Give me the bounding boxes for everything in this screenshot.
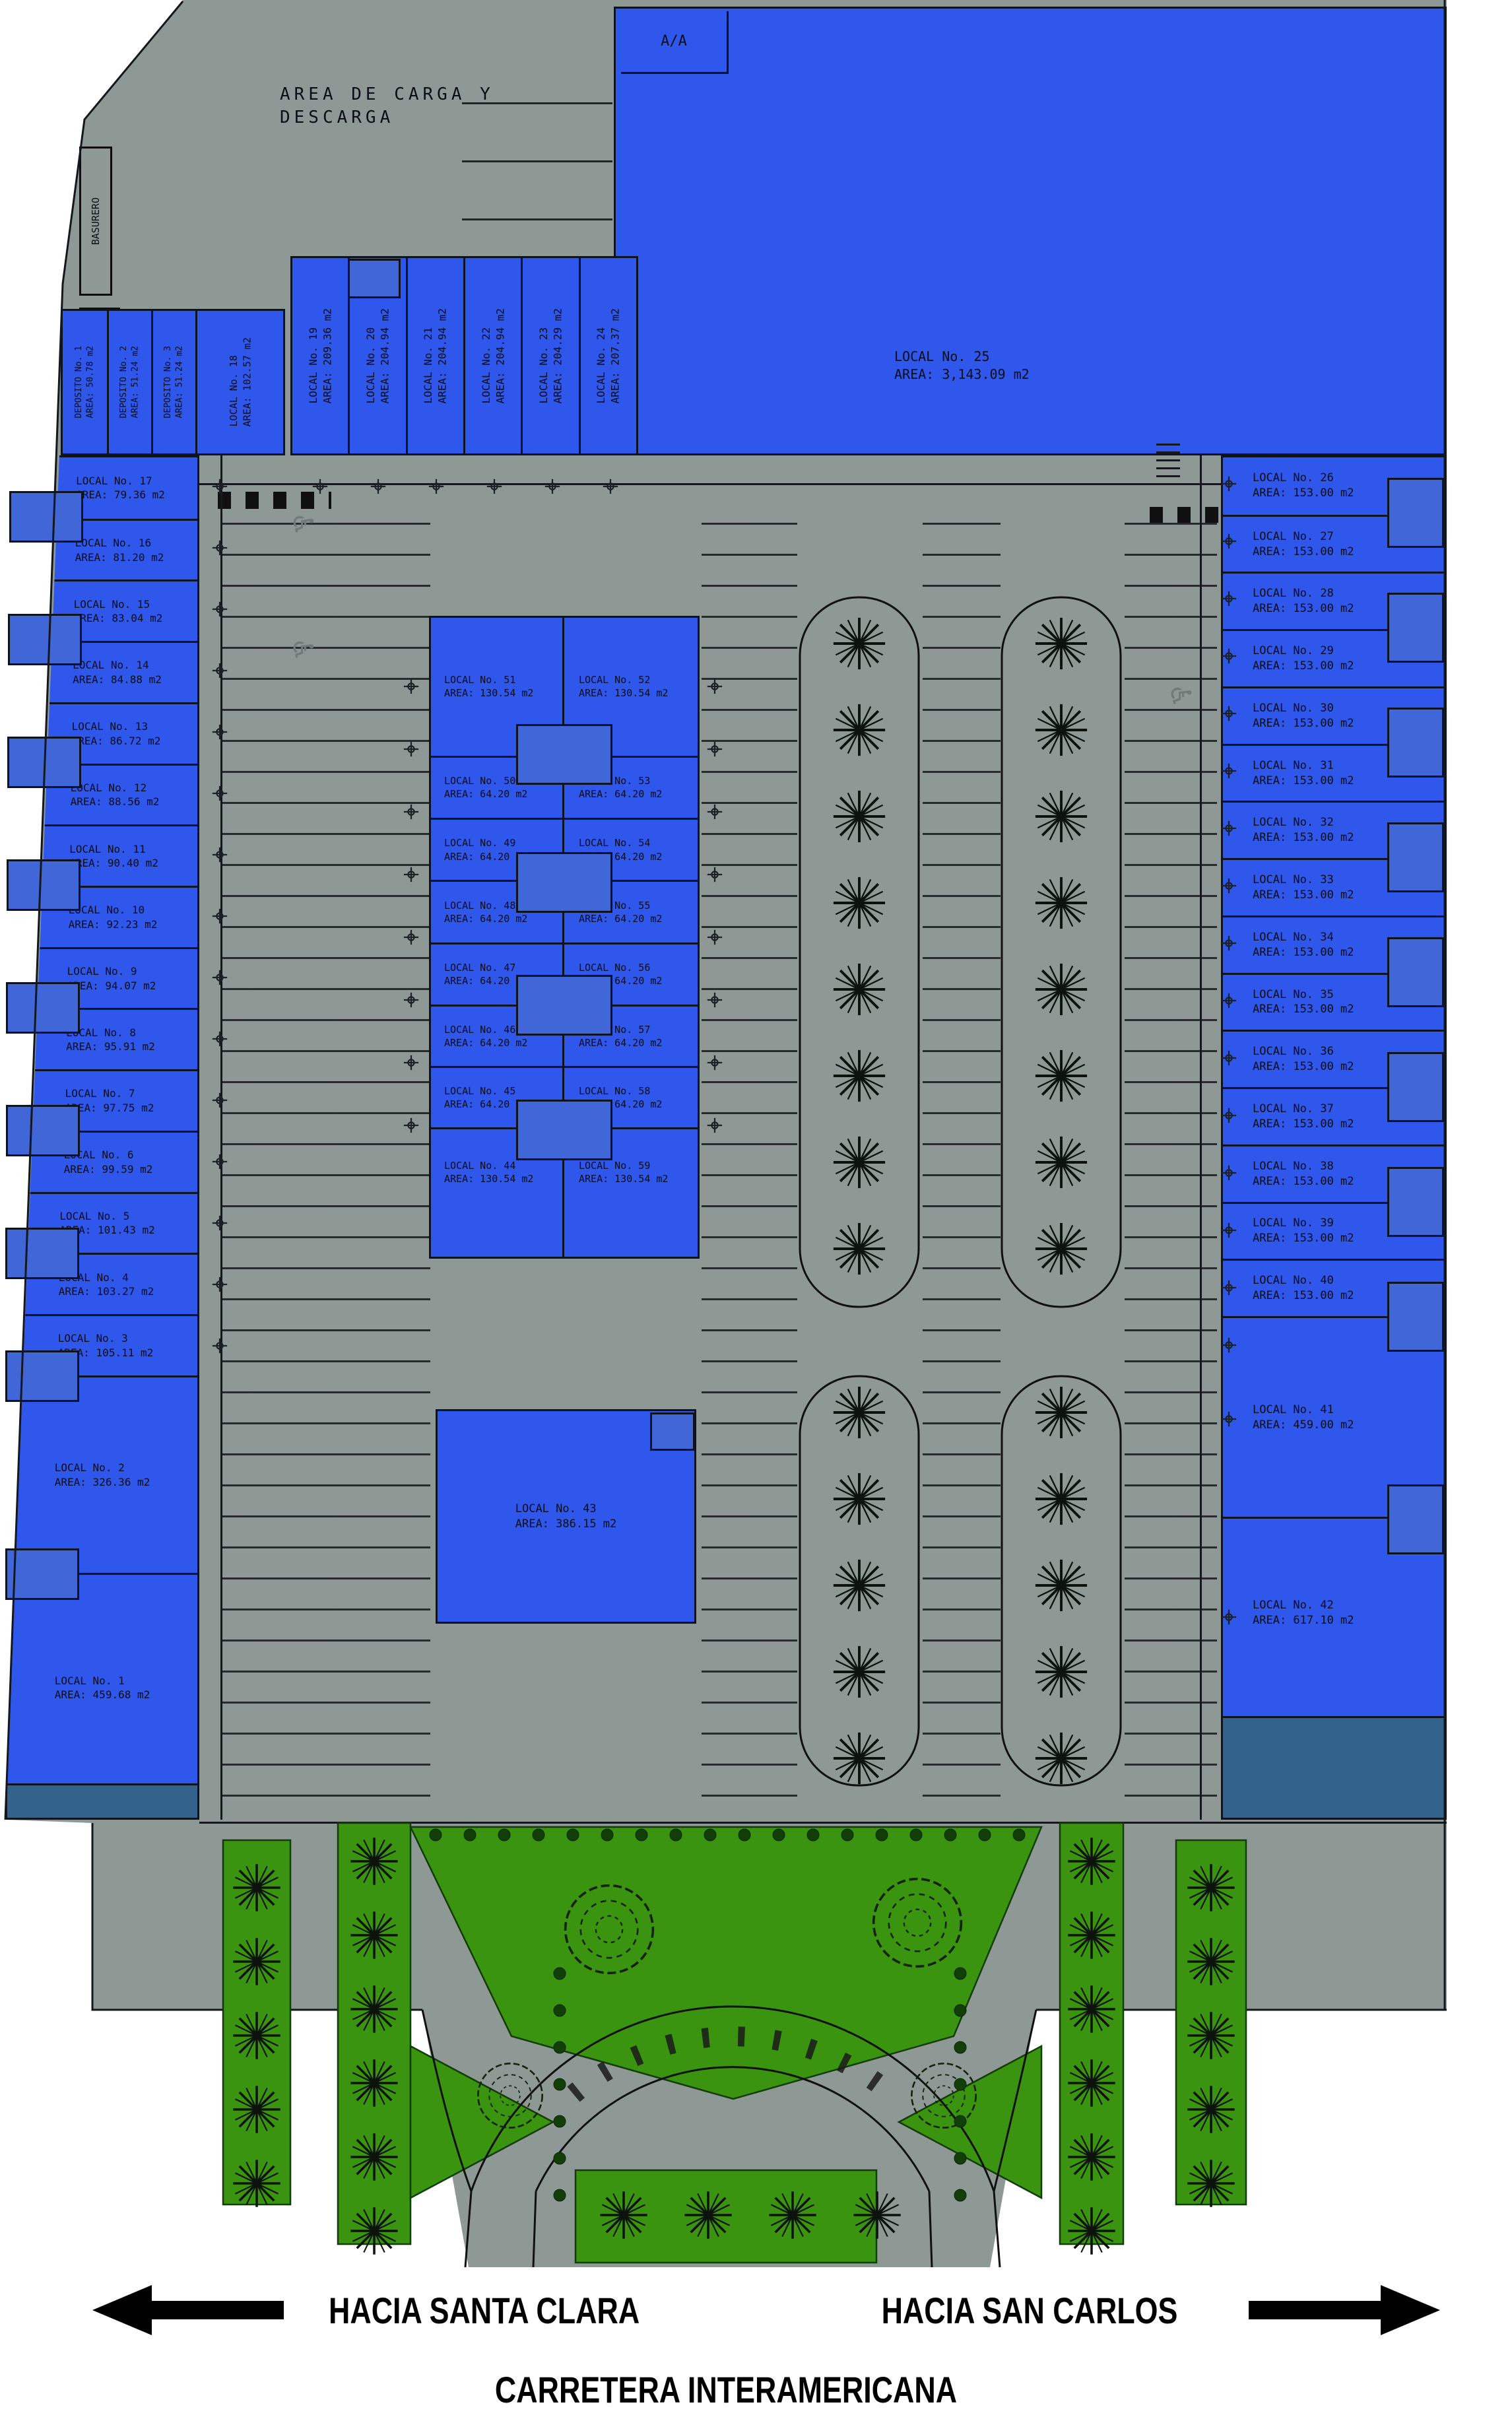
destination-right: HACIA SAN CARLOS bbox=[876, 2289, 1183, 2332]
road-name: CARRETERA INTERAMERICANA bbox=[462, 2368, 990, 2411]
palm-tree-icon bbox=[350, 2059, 397, 2106]
bathroom-pod bbox=[1387, 1052, 1444, 1122]
deposito-1: DEPOSITO No. 1AREA: 50.78 m2 bbox=[63, 311, 107, 453]
bathroom-pod bbox=[1387, 478, 1444, 548]
local-25: A/A LOCAL No. 25AREA: 3,143.09 m2 bbox=[614, 7, 1447, 455]
bathroom-pod bbox=[650, 1412, 695, 1451]
palm-tree-icon bbox=[1187, 2160, 1234, 2206]
bathroom-pod bbox=[1387, 1167, 1444, 1237]
arrow-left-icon bbox=[92, 2285, 152, 2335]
curb-left bbox=[220, 455, 222, 1820]
aa-room: A/A bbox=[621, 11, 729, 74]
bathroom-pod bbox=[516, 975, 612, 1036]
destination-left: HACIA SANTA CLARA bbox=[329, 2289, 635, 2332]
palm-tree-icon bbox=[233, 2160, 280, 2206]
bathroom-pod bbox=[1387, 1484, 1444, 1554]
palm-tree-icon bbox=[1068, 2059, 1115, 2106]
local-1: LOCAL No. 1AREA: 459.68 m2 bbox=[7, 1573, 197, 1818]
bathroom-pod bbox=[1387, 822, 1444, 892]
arrow-left-tail bbox=[148, 2301, 284, 2319]
bathroom-pod bbox=[7, 737, 81, 788]
center-west-column: LOCAL No. 51AREA: 130.54 m2 LOCAL No. 50… bbox=[429, 616, 564, 1259]
basurero-room: BASURERO bbox=[79, 147, 112, 296]
palm-tree-icon bbox=[350, 2133, 397, 2180]
carga-label: AREA DE CARGA Y DESCARGA bbox=[280, 83, 494, 129]
bathroom-pod bbox=[5, 1350, 79, 1402]
local-19: LOCAL No. 19AREA: 209.36 m2 bbox=[292, 258, 348, 453]
basurero-label: BASURERO bbox=[89, 197, 102, 245]
palm-tree-icon bbox=[1068, 2207, 1115, 2254]
local-24: LOCAL No. 24AREA: 207.37 m2 bbox=[579, 258, 636, 453]
bathroom-pod bbox=[8, 614, 82, 665]
entrance-apron bbox=[370, 2010, 1089, 2267]
bathroom-pod bbox=[1387, 708, 1444, 778]
handicap-icon: ♿ bbox=[286, 638, 319, 663]
center-east-column: LOCAL No. 52AREA: 130.54 m2 LOCAL No. 53… bbox=[562, 616, 700, 1259]
parking-stalls-carga bbox=[462, 46, 612, 238]
local-25-label: LOCAL No. 25AREA: 3,143.09 m2 bbox=[894, 312, 1030, 419]
bathroom-pod bbox=[1387, 937, 1444, 1007]
site-plan: BASURERO ✕ TX-1 500KVA AREA DE CARGA Y D… bbox=[0, 0, 1512, 2421]
bathroom-pod bbox=[5, 1548, 79, 1600]
palm-tree-icon bbox=[1187, 2086, 1234, 2133]
bathroom-pod bbox=[9, 491, 83, 543]
bathroom-pod bbox=[516, 1100, 612, 1160]
bathroom-pod bbox=[6, 1105, 80, 1156]
palm-tree-icon bbox=[1187, 2012, 1234, 2059]
palm-tree-icon bbox=[233, 2086, 280, 2133]
palm-tree-icon bbox=[233, 2012, 280, 2059]
local-2: LOCAL No. 2AREA: 326.36 m2 bbox=[7, 1376, 197, 1573]
local-18: LOCAL No. 18AREA: 102.57 m2 bbox=[195, 311, 283, 453]
bathroom-pod bbox=[1387, 1282, 1444, 1352]
bathroom-pod bbox=[516, 852, 612, 913]
local-23: LOCAL No. 23AREA: 204.29 m2 bbox=[521, 258, 578, 453]
bathroom-pod bbox=[6, 982, 80, 1034]
stairs-icon bbox=[1156, 444, 1180, 478]
deposito-2: DEPOSITO No. 2AREA: 51.24 m2 bbox=[107, 311, 151, 453]
depositos-strip: DEPOSITO No. 1AREA: 50.78 m2 DEPOSITO No… bbox=[61, 309, 285, 455]
arrow-right-icon bbox=[1381, 2285, 1440, 2335]
local-21: LOCAL No. 21AREA: 204.94 m2 bbox=[406, 258, 463, 453]
curb-plaza bbox=[199, 1822, 1447, 1824]
bathroom-pod bbox=[5, 1228, 79, 1279]
bathroom-pod bbox=[348, 259, 401, 298]
dock-strip-left bbox=[218, 492, 331, 509]
palm-tree-icon bbox=[1068, 2133, 1115, 2180]
palm-tree-icon bbox=[350, 2207, 397, 2254]
arrow-right-tail bbox=[1249, 2301, 1384, 2319]
deposito-3: DEPOSITO No. 3AREA: 51.24 m2 bbox=[151, 311, 195, 453]
awning-right bbox=[1223, 1716, 1445, 1818]
parking-stalls-mid1 bbox=[702, 494, 797, 1811]
handicap-icon: ♿ bbox=[286, 512, 319, 537]
parking-stalls-west bbox=[222, 494, 430, 1811]
dock-strip-right bbox=[1150, 507, 1221, 523]
bathroom-pod bbox=[1387, 593, 1444, 663]
parking-stalls-mid2 bbox=[923, 494, 1001, 1811]
curb-right bbox=[1200, 455, 1202, 1820]
bathroom-pod bbox=[516, 724, 612, 785]
aa-label: A/A bbox=[661, 32, 687, 51]
top-locals-strip: LOCAL No. 19AREA: 209.36 m2 LOCAL No. 20… bbox=[290, 256, 638, 455]
bathroom-pod bbox=[7, 859, 81, 911]
local-43-label: LOCAL No. 43AREA: 386.15 m2 bbox=[515, 1471, 617, 1562]
local-22: LOCAL No. 22AREA: 204.94 m2 bbox=[463, 258, 521, 453]
handicap-icon: ♿ bbox=[1164, 684, 1197, 709]
awning-left bbox=[7, 1783, 197, 1818]
